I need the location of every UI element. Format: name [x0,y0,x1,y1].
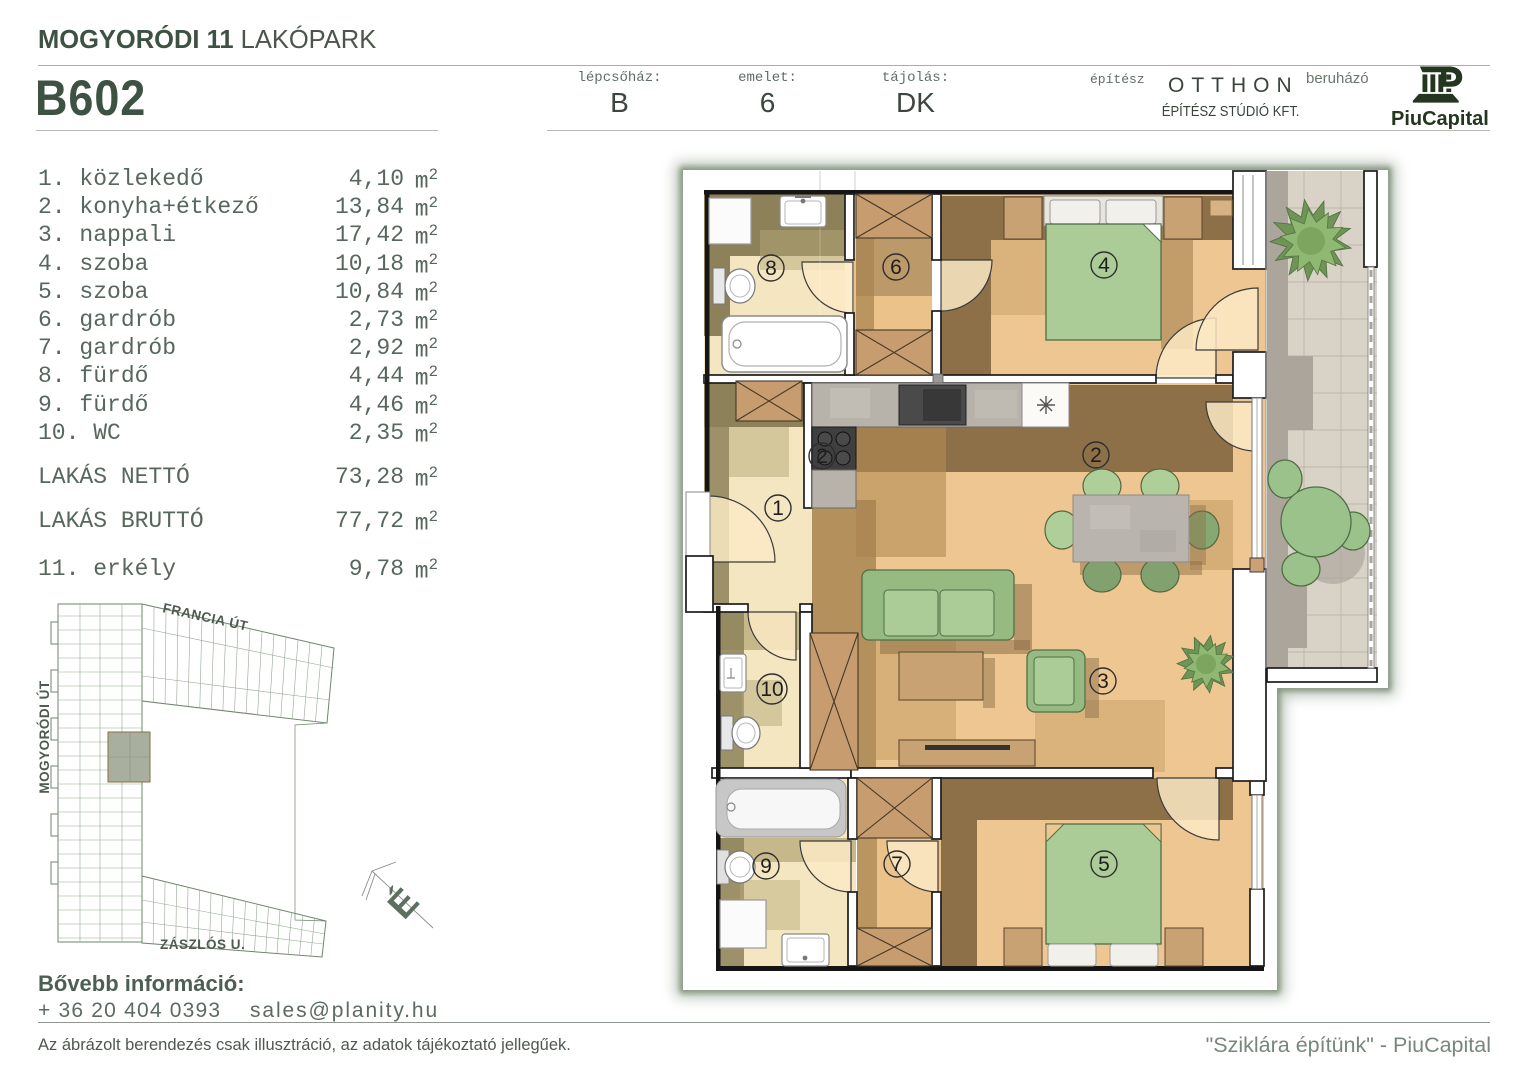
svg-text:10: 10 [760,678,783,701]
svg-text:3: 3 [1097,670,1109,693]
svg-text:9: 9 [760,855,772,878]
svg-text:2: 2 [1090,444,1102,467]
svg-text:4: 4 [1098,254,1110,277]
svg-text:5: 5 [1098,853,1110,876]
svg-text:7: 7 [891,853,903,876]
svg-text:MOGYORÓDI ÚT: MOGYORÓDI ÚT [37,680,52,794]
svg-text:É: É [380,880,427,926]
svg-text:6: 6 [890,256,902,279]
svg-text:8: 8 [765,257,777,280]
svg-text:2: 2 [816,445,828,468]
svg-text:ZÁSZLÓS U.: ZÁSZLÓS U. [160,937,245,952]
svg-text:1: 1 [772,497,784,520]
